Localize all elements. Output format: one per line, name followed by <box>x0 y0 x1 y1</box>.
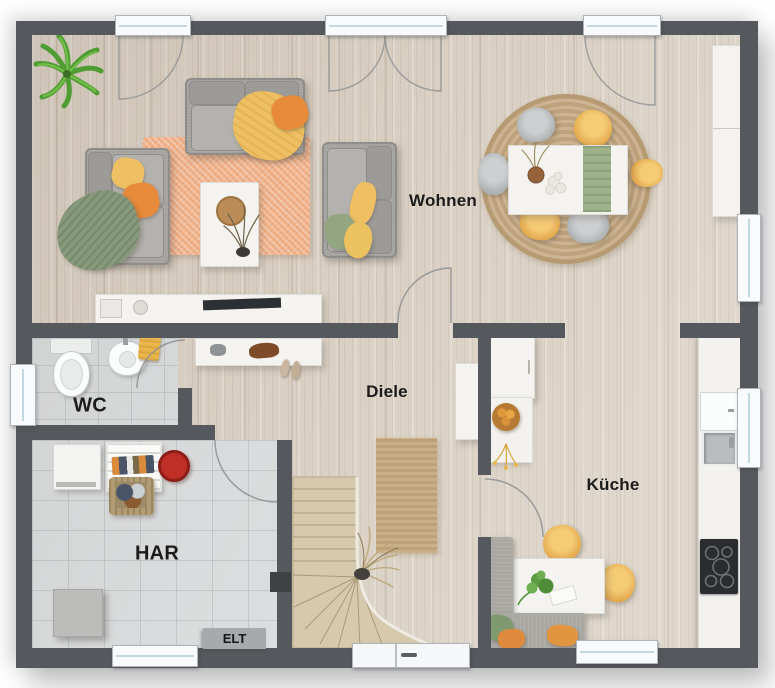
toilet-bowl <box>53 351 90 397</box>
decor-tray <box>216 196 246 226</box>
kitchen-counter-right <box>698 335 742 650</box>
cabinet-divider <box>713 128 740 129</box>
wc-har-wall <box>32 425 215 440</box>
sink-basin <box>119 351 136 368</box>
wc-east-wall <box>178 388 192 425</box>
interior-wall-kitchen-north <box>680 323 740 338</box>
cooktop <box>700 539 738 594</box>
tall-cabinet-dining <box>712 45 741 217</box>
exterior-wall-left <box>16 21 32 668</box>
fruit-bowl <box>492 403 520 431</box>
window-right-dining <box>737 214 761 302</box>
window-top-living-2 <box>325 15 447 36</box>
window-bottom-har <box>112 645 198 667</box>
window-bottom-kitchen <box>576 640 658 664</box>
window-top-dining <box>583 15 661 36</box>
fridge-handle <box>528 360 530 374</box>
laundry-clothes <box>115 482 147 508</box>
window-left-wc <box>10 364 36 426</box>
dining-chair-gray <box>478 153 510 195</box>
hall-kitchen-wall-upper <box>478 338 491 475</box>
door-mullion <box>395 644 397 667</box>
elt-panel: ELT <box>203 628 266 649</box>
window-top-living-1 <box>115 15 191 36</box>
elt-label: ELT <box>223 631 247 646</box>
room-label-kueche: Küche <box>587 475 640 495</box>
table-runner <box>583 146 611 212</box>
keys <box>210 344 226 356</box>
har-east-wall <box>277 440 292 648</box>
counter-cabinet <box>700 392 740 431</box>
window-right-kitchen <box>737 388 761 468</box>
kitchen-table <box>513 558 605 614</box>
decor-books <box>100 299 122 318</box>
toilet-seat <box>60 359 83 390</box>
chimney-block <box>270 572 291 592</box>
interior-wall-living-south-b <box>453 323 565 338</box>
floor-plan-canvas: ELT Wohnen Diele Küche WC HAR <box>0 0 775 688</box>
cabinet-handle <box>728 409 734 412</box>
storage-box <box>53 589 103 637</box>
interior-wall-living-south-a <box>32 323 398 338</box>
room-label-wohnen: Wohnen <box>409 191 477 211</box>
washing-machine <box>53 444 101 490</box>
room-label-wc: WC <box>73 395 107 418</box>
hall-cabinet <box>455 363 480 440</box>
room-label-har: HAR <box>135 543 179 566</box>
dining-table <box>508 145 628 215</box>
hallway-rug <box>376 438 437 553</box>
decor-bowl <box>133 300 148 315</box>
laundry-basket <box>109 477 154 515</box>
fridge-cabinet <box>487 335 535 399</box>
room-label-diele: Diele <box>366 382 408 402</box>
orange-pillow <box>546 624 578 647</box>
sink-faucet <box>729 437 734 448</box>
red-bucket <box>158 450 190 482</box>
exterior-wall-right <box>740 21 758 668</box>
sofa-back-cushion <box>189 81 245 105</box>
hall-kitchen-wall-lower <box>478 537 491 648</box>
door-handle <box>401 653 417 657</box>
entry-door <box>352 643 470 668</box>
washer-panel <box>56 482 96 487</box>
hanging-clothes <box>112 455 155 475</box>
